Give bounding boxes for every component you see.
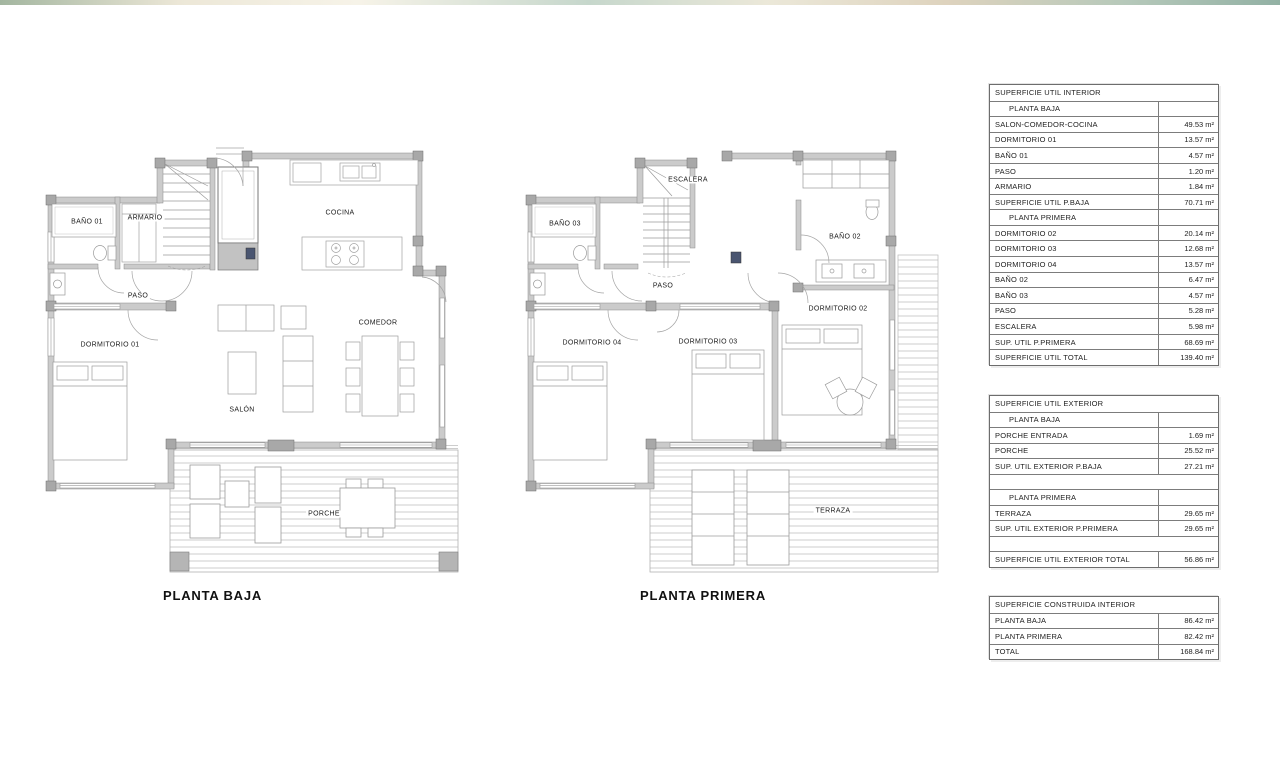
bed-dormitorio-03 [692,350,764,440]
table-row: PASO5.28 m² [990,303,1218,319]
kitchen-island [302,237,402,270]
table-row: SUPERFICIE UTIL EXTERIOR [990,396,1218,412]
table-row: PLANTA PRIMERA [990,489,1218,505]
room-label-armario: ARMARIO [126,215,165,222]
plan-title-planta-primera: PLANTA PRIMERA [640,588,766,603]
room-label-terraza: TERRAZA [814,508,853,515]
table-row: SUPERFICIE CONSTRUIDA INTERIOR [990,597,1218,613]
stairs [163,164,210,270]
room-label-porche: PORCHE [306,511,342,518]
table-row [990,536,1218,552]
bathroom-02-door-arc [801,235,829,263]
room-label-dormitorio-02: DORMITORIO 02 [806,306,869,313]
table-row: PORCHE ENTRADA1.69 m² [990,427,1218,443]
table-row: PLANTA BAJA [990,101,1218,117]
table-row: ARMARIO1.84 m² [990,178,1218,194]
table-row: PASO1.20 m² [990,163,1218,179]
room-label-bano-01: BAÑO 01 [69,219,105,226]
table-row: DORMITORIO 0312.68 m² [990,240,1218,256]
bathroom-01-door-arc [98,267,124,293]
table-row: BAÑO 026.47 m² [990,272,1218,288]
table-row: SUP. UTIL EXTERIOR P.PRIMERA29.65 m² [990,520,1218,536]
bathroom-02-fixtures [803,160,889,282]
floor-plan-planta-baja: BAÑO 01 ARMARIO COCINA PASO DORMITORIO 0… [40,140,470,600]
room-label-cocina: COCINA [323,210,356,217]
room-label-bano-02: BAÑO 02 [827,234,863,241]
table-superficie-util-exterior: SUPERFICIE UTIL EXTERIOR PLANTA BAJA POR… [989,395,1219,568]
table-row: SALON-COMEDOR-COCINA49.53 m² [990,116,1218,132]
room-label-dormitorio-03: DORMITORIO 03 [676,339,739,346]
room-label-salon: SALÓN [227,407,256,414]
table-row: SUP. UTIL P.PRIMERA68.69 m² [990,334,1218,350]
bathroom-03-fixtures [530,204,596,295]
table-row: SUPERFICIE UTIL EXTERIOR TOTAL56.86 m² [990,551,1218,567]
room-label-dormitorio-04: DORMITORIO 04 [560,340,623,347]
floor-plan-planta-primera: ESCALERA BAÑO 03 BAÑO 02 PASO DORMITORIO… [520,140,950,600]
room-label-escalera: ESCALERA [666,177,710,184]
plan-title-planta-baja: PLANTA BAJA [163,588,262,603]
closet-armario [122,204,156,262]
bed-dormitorio-04 [533,362,607,460]
room-label-comedor: COMEDOR [357,320,400,327]
table-row: TOTAL168.84 m² [990,644,1218,660]
kitchen-counter [290,160,418,185]
planta-baja-drawing [40,140,470,600]
table-row: DORMITORIO 0113.57 m² [990,132,1218,148]
table-row: BAÑO 034.57 m² [990,287,1218,303]
planta-primera-drawing [520,140,950,600]
table-row: DORMITORIO 0413.57 m² [990,256,1218,272]
table-row: PORCHE25.52 m² [990,443,1218,459]
architectural-plan-sheet: BAÑO 01 ARMARIO COCINA PASO DORMITORIO 0… [0,0,1280,761]
bed-dormitorio-01 [53,362,127,460]
electrical-box [731,252,741,263]
table-row: BAÑO 014.57 m² [990,147,1218,163]
table-row: TERRAZA29.65 m² [990,505,1218,521]
table-row: PLANTA BAJA [990,412,1218,428]
living-room-furniture [218,305,313,412]
room-label-paso: PASO [651,283,675,290]
table-row: PLANTA PRIMERA [990,209,1218,225]
table-superficie-util-interior: SUPERFICIE UTIL INTERIOR PLANTA BAJA SAL… [989,84,1219,366]
table-row: SUPERFICIE UTIL TOTAL139.40 m² [990,349,1218,365]
top-photo-strip [0,0,1280,5]
room-label-dormitorio-01: DORMITORIO 01 [78,342,141,349]
table-row: SUPERFICIE UTIL P.BAJA70.71 m² [990,194,1218,210]
table-row: DORMITORIO 0220.14 m² [990,225,1218,241]
table-row: PLANTA BAJA86.42 m² [990,613,1218,629]
table-row: SUPERFICIE UTIL INTERIOR [990,85,1218,101]
table-row [990,474,1218,490]
utility-closet [218,167,258,270]
table-row: PLANTA PRIMERA82.42 m² [990,628,1218,644]
table-row: ESCALERA5.98 m² [990,318,1218,334]
dining-table [346,336,414,416]
room-label-bano-03: BAÑO 03 [547,221,583,228]
bathroom-03-door-arc [578,267,604,293]
table-superficie-construida-interior: SUPERFICIE CONSTRUIDA INTERIOR PLANTA BA… [989,596,1219,660]
table-row: SUP. UTIL EXTERIOR P.BAJA27.21 m² [990,458,1218,474]
room-label-paso: PASO [126,293,150,300]
